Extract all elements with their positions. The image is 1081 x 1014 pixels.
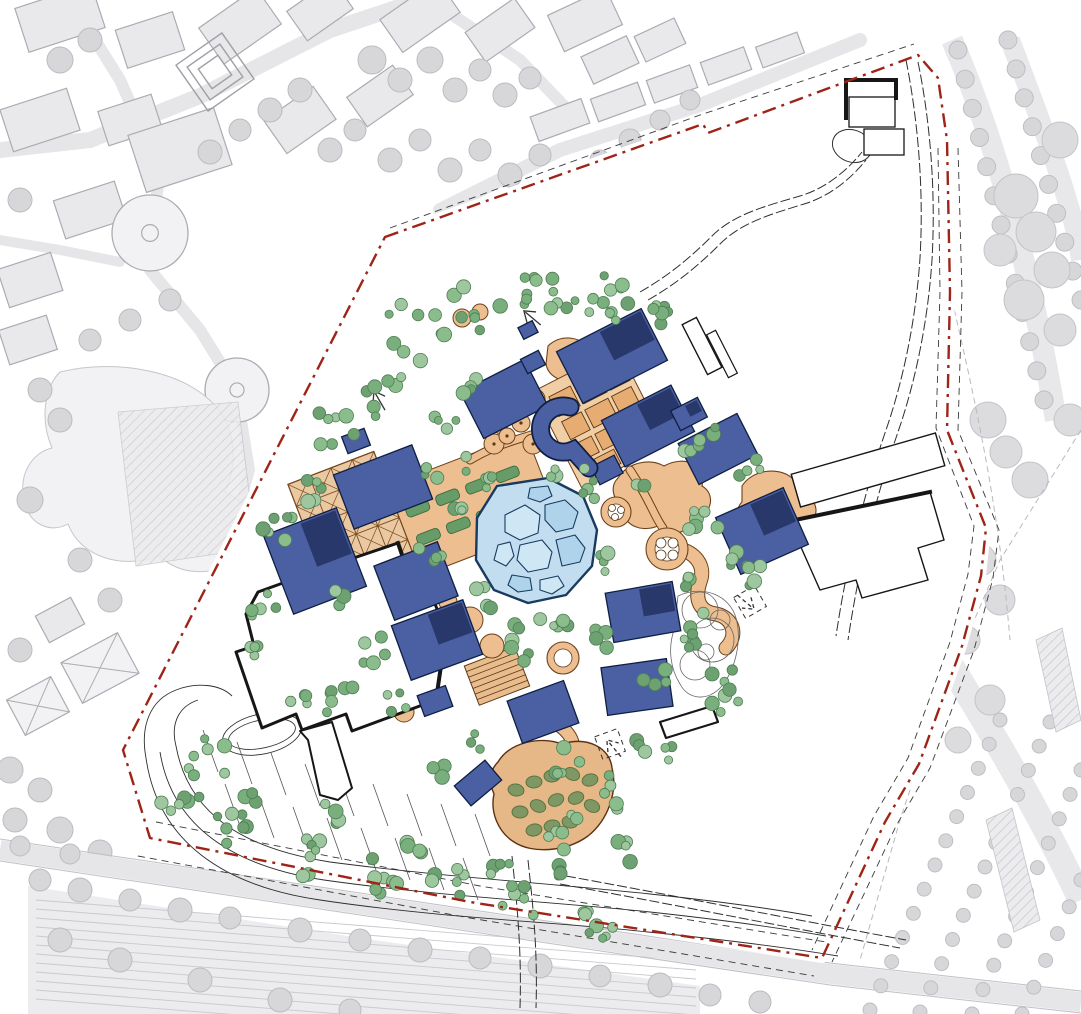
- context-tree: [344, 119, 366, 141]
- context-tree: [1028, 362, 1046, 380]
- tree: [557, 614, 570, 627]
- context-tree: [1050, 927, 1064, 941]
- context-tree: [48, 408, 72, 432]
- tree: [155, 796, 168, 809]
- tree: [263, 590, 271, 598]
- tree: [225, 807, 238, 820]
- tree: [413, 543, 425, 555]
- tree: [379, 649, 390, 660]
- context-tree: [961, 786, 975, 800]
- tree: [395, 298, 407, 310]
- context-tree: [680, 90, 700, 110]
- planter-dot: [519, 421, 522, 424]
- tree: [522, 294, 532, 304]
- tree: [588, 293, 599, 304]
- context-tree: [956, 908, 970, 922]
- tree: [698, 607, 710, 619]
- context-tree: [1041, 836, 1055, 850]
- tree: [324, 414, 333, 423]
- tree: [661, 743, 670, 752]
- context-tree: [119, 309, 141, 331]
- context-building: [700, 47, 751, 85]
- tree: [683, 523, 696, 536]
- tree: [600, 272, 608, 280]
- tree: [585, 308, 594, 317]
- context-tree: [992, 216, 1010, 234]
- tree: [513, 622, 525, 634]
- tree: [554, 867, 567, 880]
- tree: [201, 735, 209, 743]
- tree: [300, 690, 312, 702]
- context-tree: [68, 878, 92, 902]
- tree: [589, 477, 597, 485]
- context-tree: [219, 907, 241, 929]
- ring-plaza-dot: [668, 538, 678, 548]
- tree: [456, 386, 471, 401]
- tree: [705, 696, 719, 710]
- context-tree: [924, 981, 938, 995]
- tree: [544, 832, 554, 842]
- ring-plaza-dot: [656, 538, 666, 548]
- context-building: [115, 12, 184, 69]
- context-tree: [3, 808, 27, 832]
- tree: [220, 768, 230, 778]
- tree: [589, 632, 603, 646]
- tree: [544, 301, 558, 315]
- context-tree: [896, 931, 910, 945]
- tree: [612, 316, 621, 325]
- tree: [680, 635, 688, 643]
- context-tree: [417, 47, 443, 73]
- context-road: [0, 240, 120, 262]
- tree: [486, 869, 496, 879]
- tree: [188, 770, 199, 781]
- tree: [574, 757, 585, 768]
- context-tree: [10, 836, 30, 856]
- tree: [534, 613, 547, 626]
- context-tree: [168, 898, 192, 922]
- context-tree: [258, 98, 282, 122]
- context-tree: [863, 1003, 877, 1014]
- tree: [621, 297, 635, 311]
- tree: [571, 297, 579, 305]
- tree: [313, 478, 322, 487]
- context-tree: [68, 548, 92, 572]
- tree: [329, 585, 341, 597]
- context-tree: [469, 139, 491, 161]
- context-tree: [28, 778, 52, 802]
- tree: [278, 533, 291, 546]
- tree: [456, 311, 468, 323]
- tree: [493, 299, 508, 314]
- context-tree: [108, 948, 132, 972]
- tree: [301, 494, 316, 509]
- context-tree: [498, 163, 522, 187]
- tree: [366, 656, 380, 670]
- context-tree: [119, 889, 141, 911]
- context-tree: [699, 984, 721, 1006]
- tree: [296, 869, 310, 883]
- white-building: [849, 97, 895, 127]
- tree: [621, 841, 630, 850]
- context-tree: [749, 991, 771, 1013]
- context-tree: [967, 884, 981, 898]
- context-tree: [519, 67, 541, 89]
- context-tree: [443, 78, 467, 102]
- tree: [425, 874, 438, 887]
- context-tree-mass: [990, 436, 1022, 468]
- tree: [549, 287, 558, 296]
- context-tree: [409, 129, 431, 151]
- tree: [466, 738, 476, 748]
- context-tree: [79, 329, 101, 351]
- context-tree: [917, 882, 931, 896]
- context-tree: [388, 68, 412, 92]
- tree: [427, 762, 439, 774]
- tree: [189, 751, 199, 761]
- context-tree: [982, 737, 996, 751]
- tree: [579, 489, 588, 498]
- blue-building: [605, 581, 681, 642]
- context-tree-mass: [945, 727, 971, 753]
- tree: [750, 454, 762, 466]
- tree: [601, 567, 609, 575]
- tree: [609, 797, 623, 811]
- tree: [495, 859, 505, 869]
- tree: [431, 552, 441, 562]
- tree: [413, 353, 427, 367]
- tree: [370, 884, 382, 896]
- context-tree: [358, 46, 386, 74]
- context-tree: [1007, 60, 1025, 78]
- tree: [498, 901, 507, 910]
- tree: [470, 582, 484, 596]
- tree: [429, 309, 442, 322]
- tree: [747, 574, 762, 589]
- context-tree: [1062, 900, 1076, 914]
- tree: [222, 838, 232, 848]
- tree: [487, 472, 497, 482]
- tree: [217, 739, 231, 753]
- context-tree: [648, 973, 672, 997]
- tree: [658, 663, 672, 677]
- tree: [483, 484, 491, 492]
- context-tree: [8, 188, 32, 212]
- context-tree: [378, 148, 402, 172]
- tree: [546, 272, 559, 285]
- tree: [585, 928, 594, 937]
- tree: [520, 273, 530, 283]
- ring-plaza-dot: [668, 550, 678, 560]
- tree: [462, 467, 470, 475]
- tree: [371, 412, 380, 421]
- roof-shadow: [639, 584, 675, 617]
- context-tree: [1023, 118, 1041, 136]
- tree: [683, 572, 693, 582]
- tree: [431, 471, 444, 484]
- tree: [604, 771, 614, 781]
- context-tree: [965, 1007, 979, 1014]
- tree: [375, 631, 387, 643]
- tree: [247, 788, 258, 799]
- tree: [518, 881, 530, 893]
- tree: [699, 506, 710, 517]
- tree: [476, 745, 485, 754]
- context-tree: [1030, 861, 1044, 875]
- context-tree: [469, 59, 491, 81]
- context-tree-mass: [1004, 280, 1044, 320]
- context-tree: [159, 289, 181, 311]
- context-tree: [1040, 175, 1058, 193]
- context-building: [0, 315, 57, 365]
- planter-dot: [492, 442, 495, 445]
- tree: [557, 843, 570, 856]
- tree: [637, 673, 650, 686]
- tree: [520, 894, 529, 903]
- tree: [412, 309, 424, 321]
- tree: [383, 690, 392, 699]
- tree: [599, 934, 607, 942]
- tree: [756, 465, 764, 473]
- tree: [505, 859, 514, 868]
- tree: [339, 409, 354, 424]
- context-tree: [939, 834, 953, 848]
- tree: [726, 553, 738, 565]
- ring-plaza-dot: [656, 550, 666, 560]
- tree: [690, 507, 699, 516]
- context-tree: [408, 938, 432, 962]
- tree: [600, 788, 610, 798]
- context-tree: [906, 906, 920, 920]
- tree: [579, 908, 592, 921]
- tree: [359, 637, 371, 649]
- context-tree: [8, 638, 32, 662]
- tree: [753, 560, 766, 573]
- tree: [322, 708, 331, 717]
- tree: [589, 493, 599, 503]
- tree: [320, 799, 330, 809]
- ring-plaza-dot: [609, 505, 616, 512]
- context-tree: [956, 70, 974, 88]
- tree: [742, 466, 752, 476]
- tree: [269, 513, 279, 523]
- context-tree: [529, 144, 551, 166]
- tree: [684, 643, 693, 652]
- context-tree: [935, 957, 949, 971]
- garden-bush: [512, 806, 528, 818]
- tree: [557, 741, 571, 755]
- tree: [326, 695, 338, 707]
- tree: [623, 854, 638, 869]
- context-tree: [1015, 89, 1033, 107]
- context-tree: [198, 140, 222, 164]
- tree: [314, 438, 327, 451]
- tree: [518, 655, 531, 668]
- context-tree: [1039, 953, 1053, 967]
- tree: [194, 792, 204, 802]
- context-tree-mass: [1042, 122, 1078, 158]
- context-tree: [963, 99, 981, 117]
- context-building: [634, 18, 686, 62]
- tree: [385, 310, 393, 318]
- context-tree: [288, 78, 312, 102]
- tree: [661, 677, 671, 687]
- tree: [348, 428, 360, 440]
- context-tree-mass: [1054, 404, 1081, 436]
- context-building: [0, 252, 63, 307]
- tree: [301, 474, 313, 486]
- tree: [166, 806, 176, 816]
- tree: [286, 696, 296, 706]
- context-tree: [976, 983, 990, 997]
- context-tree: [268, 988, 292, 1012]
- ring-plaza-center: [554, 649, 572, 667]
- context-tree: [0, 757, 23, 783]
- tree: [605, 308, 614, 317]
- tree: [705, 667, 719, 681]
- tree: [470, 313, 480, 323]
- tree: [608, 922, 618, 932]
- tree: [638, 745, 651, 758]
- context-tree: [1074, 763, 1081, 777]
- tree: [397, 346, 410, 359]
- context-tree: [978, 860, 992, 874]
- context-tree: [971, 129, 989, 147]
- tree: [601, 546, 615, 560]
- context-hatch-strip: [1036, 628, 1081, 732]
- context-tree: [971, 761, 985, 775]
- tree: [680, 581, 691, 592]
- tree: [452, 877, 461, 886]
- master-plan-map: [0, 0, 1081, 1014]
- context-tree: [1021, 333, 1039, 351]
- tree: [397, 373, 406, 382]
- context-tree: [885, 955, 899, 969]
- context-tree: [1015, 1007, 1029, 1014]
- context-tree: [229, 119, 251, 141]
- context-tree: [949, 41, 967, 59]
- context-tree: [999, 31, 1017, 49]
- context-tree: [469, 947, 491, 969]
- planter-dot: [505, 434, 508, 437]
- tree: [727, 665, 737, 675]
- context-tree: [1032, 739, 1046, 753]
- context-tree: [188, 968, 212, 992]
- tree: [327, 439, 338, 450]
- tree: [638, 479, 651, 492]
- tree: [386, 706, 396, 716]
- tree: [551, 465, 559, 473]
- context-tree: [1021, 763, 1035, 777]
- context-tree: [17, 487, 43, 513]
- context-tree: [48, 928, 72, 952]
- tree: [328, 804, 343, 819]
- tree: [471, 730, 479, 738]
- context-tree-mass: [1016, 212, 1056, 252]
- context-tree: [438, 158, 462, 182]
- context-building: [35, 597, 84, 642]
- tree: [475, 325, 485, 335]
- tree: [311, 846, 319, 854]
- context-tree: [47, 817, 73, 843]
- context-tree-mass: [994, 174, 1038, 218]
- tree: [452, 863, 463, 874]
- context-tree-mass: [1044, 314, 1076, 346]
- tree: [346, 681, 359, 694]
- context-tree: [98, 588, 122, 612]
- tree: [402, 704, 411, 713]
- context-tree: [60, 844, 80, 864]
- tree: [213, 812, 222, 821]
- tree: [366, 853, 378, 865]
- tree: [441, 423, 452, 434]
- tree: [382, 375, 394, 387]
- context-tree: [589, 965, 611, 987]
- tree: [556, 826, 569, 839]
- context-tree: [318, 138, 342, 162]
- tree: [421, 463, 432, 474]
- tree: [579, 464, 589, 474]
- context-tree: [1072, 291, 1081, 309]
- context-tree: [946, 933, 960, 947]
- ring-plaza-dot: [612, 514, 619, 521]
- context-tree: [29, 869, 51, 891]
- tan-pad: [480, 634, 504, 658]
- tree: [597, 296, 609, 308]
- tree: [413, 844, 426, 857]
- tree: [484, 601, 498, 615]
- tree: [507, 881, 518, 892]
- context-tree: [950, 810, 964, 824]
- context-tree: [528, 954, 552, 978]
- tree: [716, 708, 725, 717]
- context-tree: [993, 713, 1007, 727]
- tree: [615, 278, 629, 292]
- tree: [437, 327, 452, 342]
- tree: [202, 744, 213, 755]
- tree: [648, 303, 659, 314]
- tree: [434, 416, 442, 424]
- tree: [694, 434, 706, 446]
- context-tree: [987, 958, 1001, 972]
- context-tree-mass: [984, 234, 1016, 266]
- context-tree: [1027, 980, 1041, 994]
- tree: [711, 423, 720, 432]
- tree: [723, 683, 736, 696]
- tree: [734, 697, 743, 706]
- tree: [174, 800, 184, 810]
- tree: [504, 640, 518, 654]
- tree: [687, 629, 697, 639]
- context-plaza-circle: [112, 195, 188, 271]
- tree: [553, 769, 563, 779]
- context-tree-mass: [1034, 252, 1070, 288]
- tree: [368, 380, 382, 394]
- context-tree: [874, 979, 888, 993]
- context-tree-mass: [975, 685, 1005, 715]
- ring-plaza-dot: [618, 507, 625, 514]
- context-tree: [1011, 788, 1025, 802]
- tree: [461, 451, 472, 462]
- context-tree: [78, 28, 102, 52]
- context-tree: [47, 47, 73, 73]
- context-building: [581, 36, 639, 84]
- context-tree: [493, 83, 517, 107]
- context-tree: [28, 378, 52, 402]
- tree: [711, 521, 724, 534]
- context-tree-mass: [970, 402, 1006, 438]
- tree: [282, 513, 292, 523]
